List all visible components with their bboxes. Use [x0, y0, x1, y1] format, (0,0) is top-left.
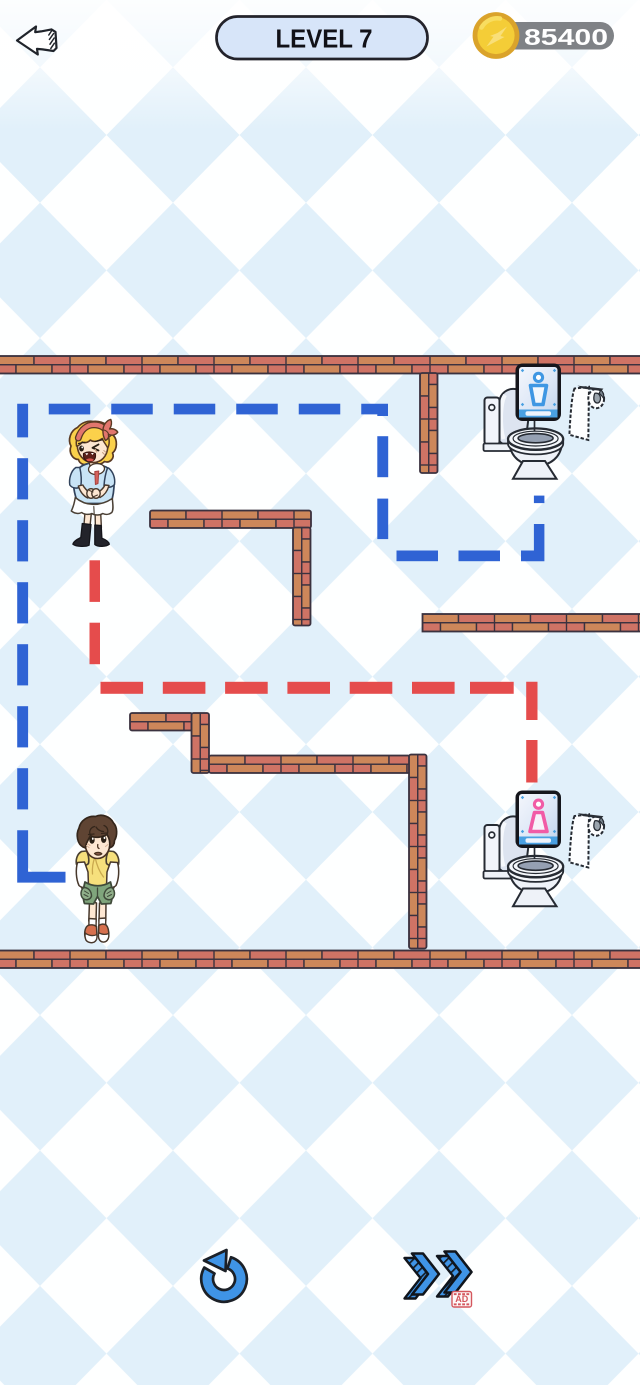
svg-text:AD: AD	[455, 1294, 468, 1304]
svg-text:LEVEL 7: LEVEL 7	[276, 24, 373, 54]
svg-text:85400: 85400	[524, 24, 608, 50]
